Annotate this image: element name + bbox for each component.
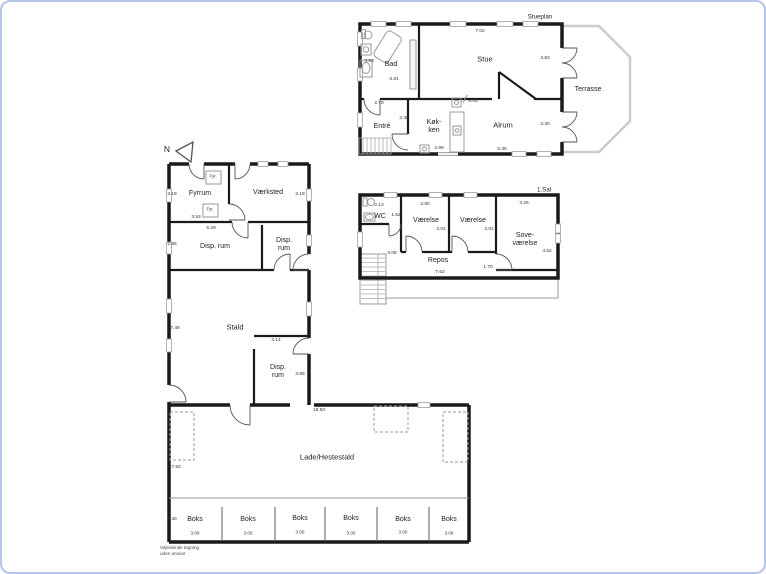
outbuilding-walls — [167, 142, 470, 542]
stueplan-walls — [358, 22, 631, 157]
disclaimer-line2: uden ansvar — [160, 551, 185, 557]
floorplan-image: Stueplan 7.02 3.83 Bad 3.81 Stue 3.83 Te… — [0, 0, 766, 574]
firstfloor-walls — [358, 193, 561, 305]
stueplan-fixtures — [359, 30, 467, 155]
north-arrow-icon — [176, 142, 193, 162]
floorplan-drawing — [2, 2, 766, 574]
